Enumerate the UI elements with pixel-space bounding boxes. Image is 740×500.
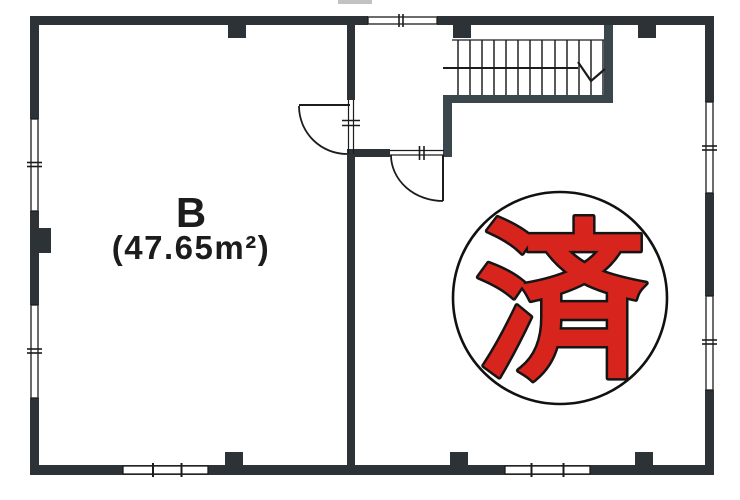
pillar xyxy=(38,228,51,253)
outer-wall-right xyxy=(705,16,714,475)
partition-wall-lower xyxy=(347,154,355,465)
pillar xyxy=(453,25,471,38)
stair-wall-bottom xyxy=(443,95,613,103)
window xyxy=(702,102,717,193)
window xyxy=(27,305,42,398)
door-room-b xyxy=(299,100,360,154)
window xyxy=(702,296,717,390)
stair-wall-right xyxy=(604,25,613,103)
window xyxy=(368,14,437,27)
stamp-kanji: 済 xyxy=(476,209,647,399)
cropped-text-artifact xyxy=(338,0,372,4)
floor-plan-svg: B (47.65m²) 済 xyxy=(0,0,740,500)
pillar xyxy=(228,25,246,38)
partition-wall-upper xyxy=(347,25,355,100)
door-swing-arc xyxy=(299,106,347,154)
staircase xyxy=(443,40,605,95)
door-swing-arc xyxy=(391,155,443,201)
door-right-room xyxy=(390,146,444,201)
room-b-area: (47.65m²) xyxy=(112,229,270,266)
outer-wall-left xyxy=(30,16,39,475)
pillar xyxy=(635,452,653,465)
sold-stamp: 済 xyxy=(453,192,667,404)
floor-plan-canvas: B (47.65m²) 済 xyxy=(0,0,740,500)
pillar xyxy=(225,452,243,465)
pillar xyxy=(638,25,656,38)
pillar xyxy=(450,452,468,465)
stair-wall-left xyxy=(443,95,452,157)
window xyxy=(27,119,42,211)
